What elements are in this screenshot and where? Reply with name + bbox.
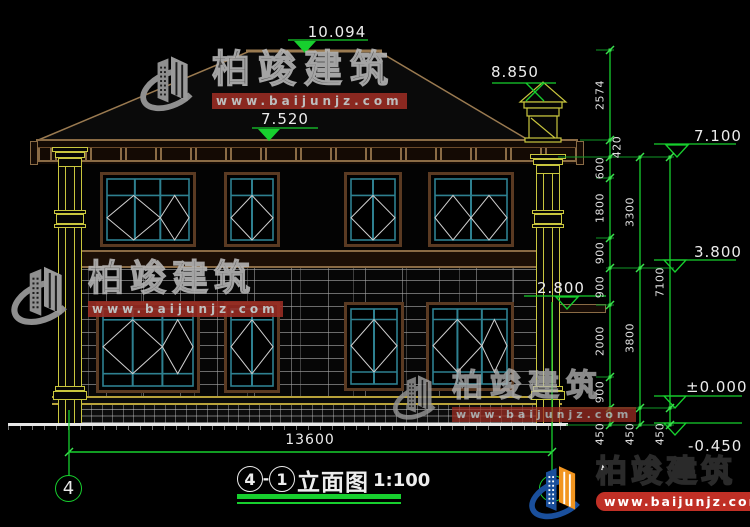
dimension-label: 2574 [594, 80, 607, 110]
grid-bubble-left: 4 [55, 475, 82, 502]
watermark-url: www.baijunjz.com [88, 301, 283, 317]
watermark-bottom: 柏竣建筑 www.baijunjz.com [390, 370, 636, 422]
drawing-title: 立面图 [297, 463, 369, 497]
drawing-scale: 1:100 [373, 470, 430, 491]
dimension-label: 450 [624, 423, 637, 446]
logo-url: www.baijunjz.com [596, 492, 750, 511]
dimension-label: 1800 [594, 193, 607, 223]
dimension-label: 600 [594, 157, 607, 180]
baijun-logo-icon [390, 370, 446, 422]
watermark-brand: 柏竣建筑 [88, 260, 283, 298]
company-logo: 柏竣建筑 www.baijunjz.com [528, 456, 750, 526]
dimension-label: 3300 [624, 197, 637, 227]
level-floor2: 7.100 [694, 127, 742, 145]
dimension-label: 450 [594, 423, 607, 446]
baijun-logo-icon [136, 50, 206, 114]
watermark-brand: 柏竣建筑 [452, 370, 636, 403]
dim-bottom-width: 13600 [270, 432, 350, 448]
baijun-logo-icon [528, 456, 590, 526]
logo-brand: 柏竣建筑 [596, 456, 750, 489]
baijun-logo-icon [6, 260, 82, 328]
dimension-label: 420 [611, 136, 624, 159]
watermark-url: www.baijunjz.com [212, 93, 407, 109]
title-underline-thin [237, 502, 401, 504]
dimension-label: 2000 [594, 326, 607, 356]
dimension-label: 3800 [624, 323, 637, 353]
dimension-label: 900 [594, 242, 607, 265]
level-canopy: 2.800 [526, 279, 596, 297]
level-zero: ±0.000 [686, 378, 748, 396]
level-chimney: 8.850 [480, 63, 550, 81]
watermark-brand: 柏竣建筑 [212, 50, 407, 90]
dimension-label: 450 [654, 423, 667, 446]
dimension-label: 7100 [654, 267, 667, 297]
level-ridge: 10.094 [302, 23, 372, 41]
title-bubble-b: 1 [269, 466, 295, 492]
level-belt: 3.800 [694, 243, 742, 261]
level-ground: -0.450 [688, 437, 742, 455]
watermark-url: www.baijunjz.com [452, 407, 636, 422]
cad-elevation-drawing: 2574420600180090090020009004503300380045… [0, 0, 750, 527]
watermark-left: 柏竣建筑 www.baijunjz.com [6, 260, 283, 328]
title-underline-thick [237, 494, 401, 499]
watermark-top: 柏竣建筑 www.baijunjz.com [136, 50, 407, 114]
